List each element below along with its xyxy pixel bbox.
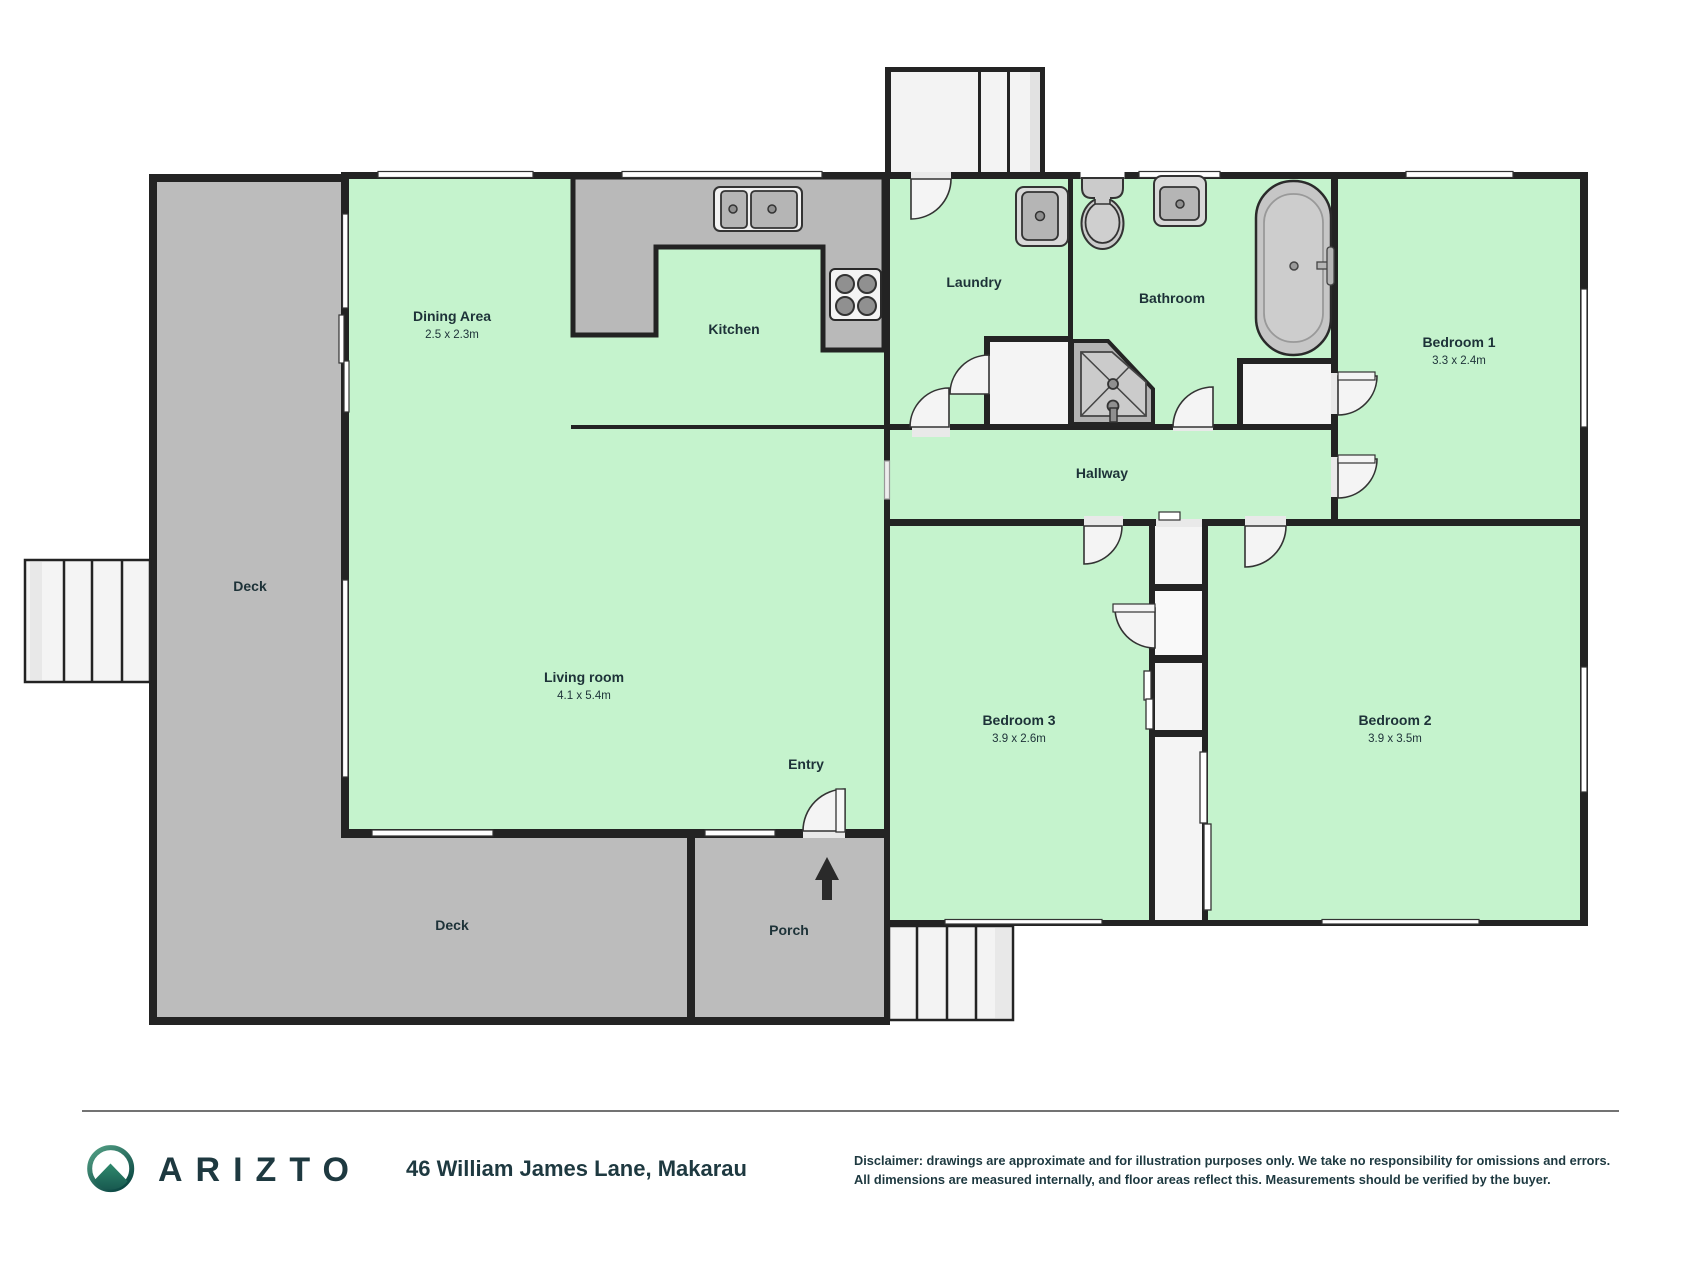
svg-text:Kitchen: Kitchen [708,321,759,337]
svg-text:Entry: Entry [788,756,824,772]
svg-text:Bedroom 1: Bedroom 1 [1422,334,1495,350]
svg-text:3.9 x 2.6m: 3.9 x 2.6m [992,733,1046,745]
svg-text:4.1 x 5.4m: 4.1 x 5.4m [557,690,611,702]
svg-text:46 William James Lane, Makarau: 46 William James Lane, Makarau [406,1156,747,1181]
svg-text:All dimensions are measured in: All dimensions are measured internally, … [854,1172,1551,1187]
svg-text:3.3 x 2.4m: 3.3 x 2.4m [1432,355,1486,367]
svg-text:Laundry: Laundry [946,274,1001,290]
svg-text:Bathroom: Bathroom [1139,290,1205,306]
svg-text:ARIZTO: ARIZTO [158,1151,362,1189]
svg-text:Deck: Deck [435,917,469,933]
svg-text:3.9 x 3.5m: 3.9 x 3.5m [1368,733,1422,745]
svg-text:Bedroom 2: Bedroom 2 [1358,712,1431,728]
svg-text:Disclaimer: drawings are appro: Disclaimer: drawings are approximate and… [854,1153,1610,1168]
svg-text:Living room: Living room [544,669,624,685]
svg-text:Porch: Porch [769,922,809,938]
svg-text:Dining Area: Dining Area [413,308,491,324]
svg-text:Deck: Deck [233,578,267,594]
svg-text:Hallway: Hallway [1076,465,1128,481]
svg-text:Bedroom 3: Bedroom 3 [982,712,1055,728]
svg-text:2.5 x 2.3m: 2.5 x 2.3m [425,329,479,341]
